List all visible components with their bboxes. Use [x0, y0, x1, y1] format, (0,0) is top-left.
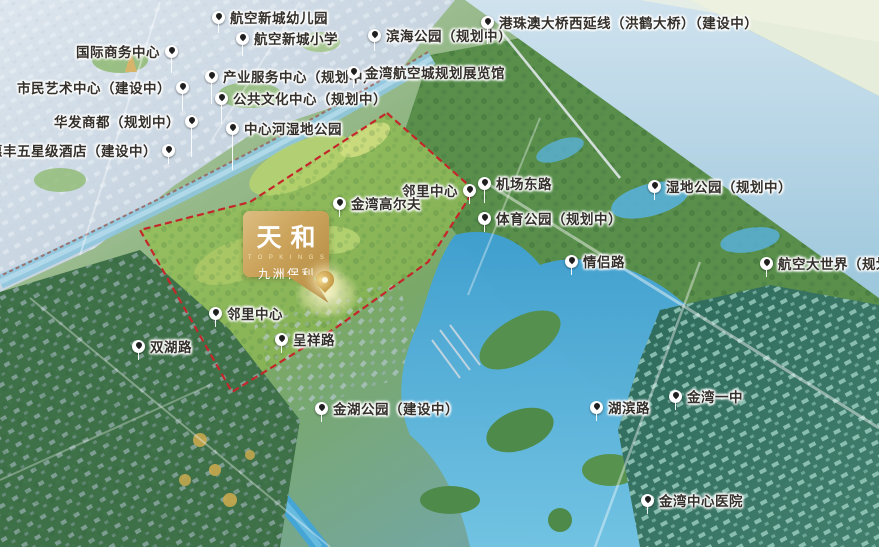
- location-pin-icon: [463, 184, 476, 197]
- location-pin-icon: [212, 11, 225, 24]
- location-pin-icon: [176, 81, 189, 94]
- map-label-text: 公共文化中心（规划中）: [233, 88, 387, 108]
- map-label: 公共文化中心（规划中）: [215, 88, 387, 108]
- map-label: 邻里中心: [209, 303, 283, 323]
- map-label: 情侣路: [565, 251, 625, 271]
- map-label: 港珠澳大桥西延线（洪鹤大桥）（建设中）: [481, 12, 758, 32]
- map-label: 金湾航空城规划展览馆: [347, 62, 505, 82]
- map-label: 呈祥路: [275, 329, 335, 349]
- location-pin-icon: [226, 122, 239, 135]
- map-label: 金湖公园（建设中）: [315, 398, 459, 418]
- location-pin-icon: [333, 197, 346, 210]
- map-label: 体育公园（规划中）: [478, 208, 622, 228]
- map-label: 双湖路: [132, 336, 192, 356]
- map-label-text: 中心河湿地公园: [244, 118, 342, 138]
- location-pin-icon: [648, 180, 661, 193]
- aerial-map: 航空新城幼儿园国际商务中心航空新城小学滨海公园（规划中）港珠澳大桥西延线（洪鹤大…: [0, 0, 879, 547]
- map-label-text: 金湾一中: [687, 386, 743, 406]
- project-logo: 天和 T O P K I N G S 九洲保利: [243, 211, 329, 277]
- map-label: 金湾中心医院: [641, 490, 743, 510]
- map-label-text: 体育公园（规划中）: [496, 208, 622, 228]
- map-label: 湖滨路: [590, 397, 650, 417]
- location-pin-icon: [590, 401, 603, 414]
- map-label: 金湾一中: [669, 386, 743, 406]
- map-label: 华发商都（规划中）: [54, 111, 198, 131]
- map-label-text: 金湾航空城规划展览馆: [365, 62, 505, 82]
- location-pin-icon: [185, 115, 198, 128]
- map-label-text: 情侣路: [583, 251, 625, 271]
- location-pin-icon: [565, 255, 578, 268]
- map-label-text: 呈祥路: [293, 329, 335, 349]
- location-pin-icon: [760, 257, 773, 270]
- location-pin-icon: [165, 45, 178, 58]
- map-label-text: 港珠澳大桥西延线（洪鹤大桥）（建设中）: [499, 12, 758, 32]
- map-label: 航空新城小学: [236, 28, 338, 48]
- map-label-text: 航空大世界（规划中）: [778, 253, 879, 273]
- location-pin-icon: [315, 402, 328, 415]
- map-label: 机场东路: [478, 173, 552, 193]
- location-pin-icon: [478, 212, 491, 225]
- map-label-text: 金湖公园（建设中）: [333, 398, 459, 418]
- map-label-text: 毛林惠丰五星级酒店（建设中）: [0, 140, 157, 160]
- location-pin-icon: [368, 29, 381, 42]
- location-pin-icon: [132, 340, 145, 353]
- location-pin-icon: [209, 307, 222, 320]
- map-label-text: 金湾高尔夫: [351, 193, 421, 213]
- map-label: 湿地公园（规划中）: [648, 176, 792, 196]
- map-label-text: 湖滨路: [608, 397, 650, 417]
- project-name-latin: T O P K I N G S: [243, 255, 329, 261]
- map-label: 金湾高尔夫: [333, 193, 421, 213]
- map-label: 毛林惠丰五星级酒店（建设中）: [0, 140, 175, 160]
- map-label: 市民艺术中心（建设中）: [17, 77, 189, 97]
- location-pin-icon: [669, 390, 682, 403]
- map-label: 航空大世界（规划中）: [760, 253, 879, 273]
- location-pin-icon: [478, 177, 491, 190]
- map-label-text: 国际商务中心: [76, 41, 160, 61]
- location-pin-icon: [215, 92, 228, 105]
- map-labels-layer: 航空新城幼儿园国际商务中心航空新城小学滨海公园（规划中）港珠澳大桥西延线（洪鹤大…: [0, 0, 879, 547]
- map-label-text: 金湾中心医院: [659, 490, 743, 510]
- map-label: 航空新城幼儿园: [212, 7, 328, 27]
- location-pin-icon: [347, 66, 360, 79]
- location-pin-icon: [205, 70, 218, 83]
- map-label-text: 双湖路: [150, 336, 192, 356]
- location-pin-icon: [641, 494, 654, 507]
- location-pin-icon: [236, 32, 249, 45]
- map-label: 中心河湿地公园: [226, 118, 342, 138]
- map-label-text: 航空新城小学: [254, 28, 338, 48]
- map-label: 国际商务中心: [76, 41, 178, 61]
- map-label-text: 华发商都（规划中）: [54, 111, 180, 131]
- project-name: 天和: [243, 218, 329, 254]
- map-label-text: 航空新城幼儿园: [230, 7, 328, 27]
- location-pin-icon: [481, 16, 494, 29]
- location-pin-icon: [162, 144, 175, 157]
- location-pin-icon: [275, 333, 288, 346]
- map-label-text: 机场东路: [496, 173, 552, 193]
- map-label-text: 邻里中心: [227, 303, 283, 323]
- map-label-text: 湿地公园（规划中）: [666, 176, 792, 196]
- map-label-text: 市民艺术中心（建设中）: [17, 77, 171, 97]
